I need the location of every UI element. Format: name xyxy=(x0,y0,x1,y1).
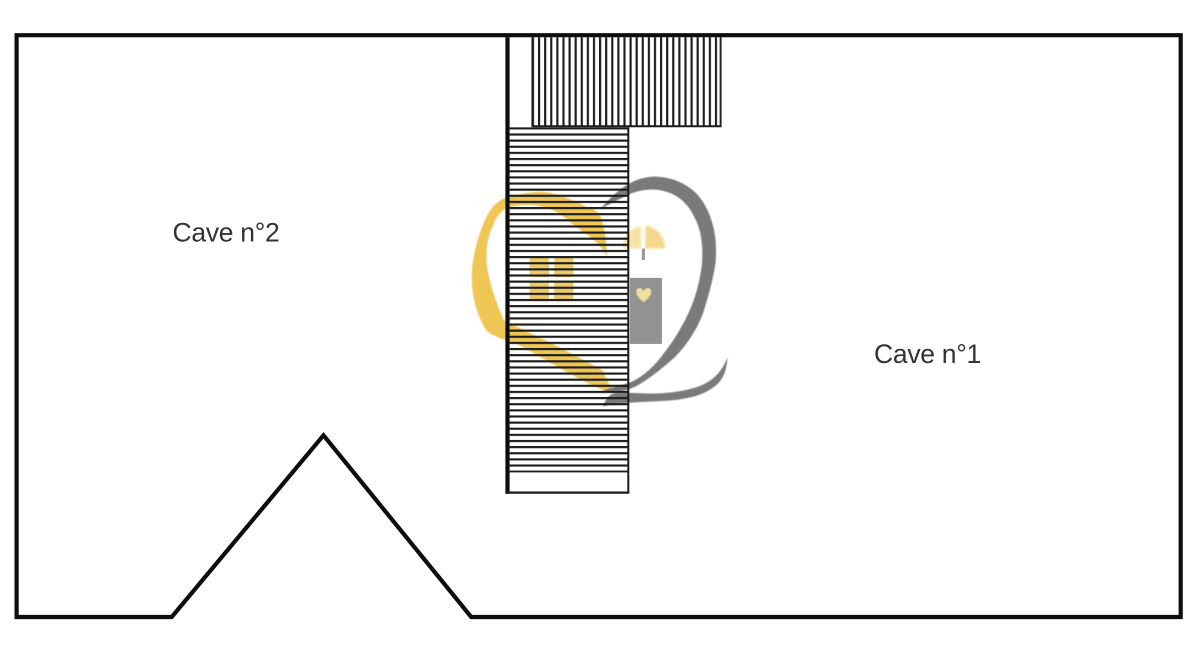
svg-text:Cave n°2: Cave n°2 xyxy=(173,217,280,247)
svg-text:Cave n°1: Cave n°1 xyxy=(874,339,981,369)
